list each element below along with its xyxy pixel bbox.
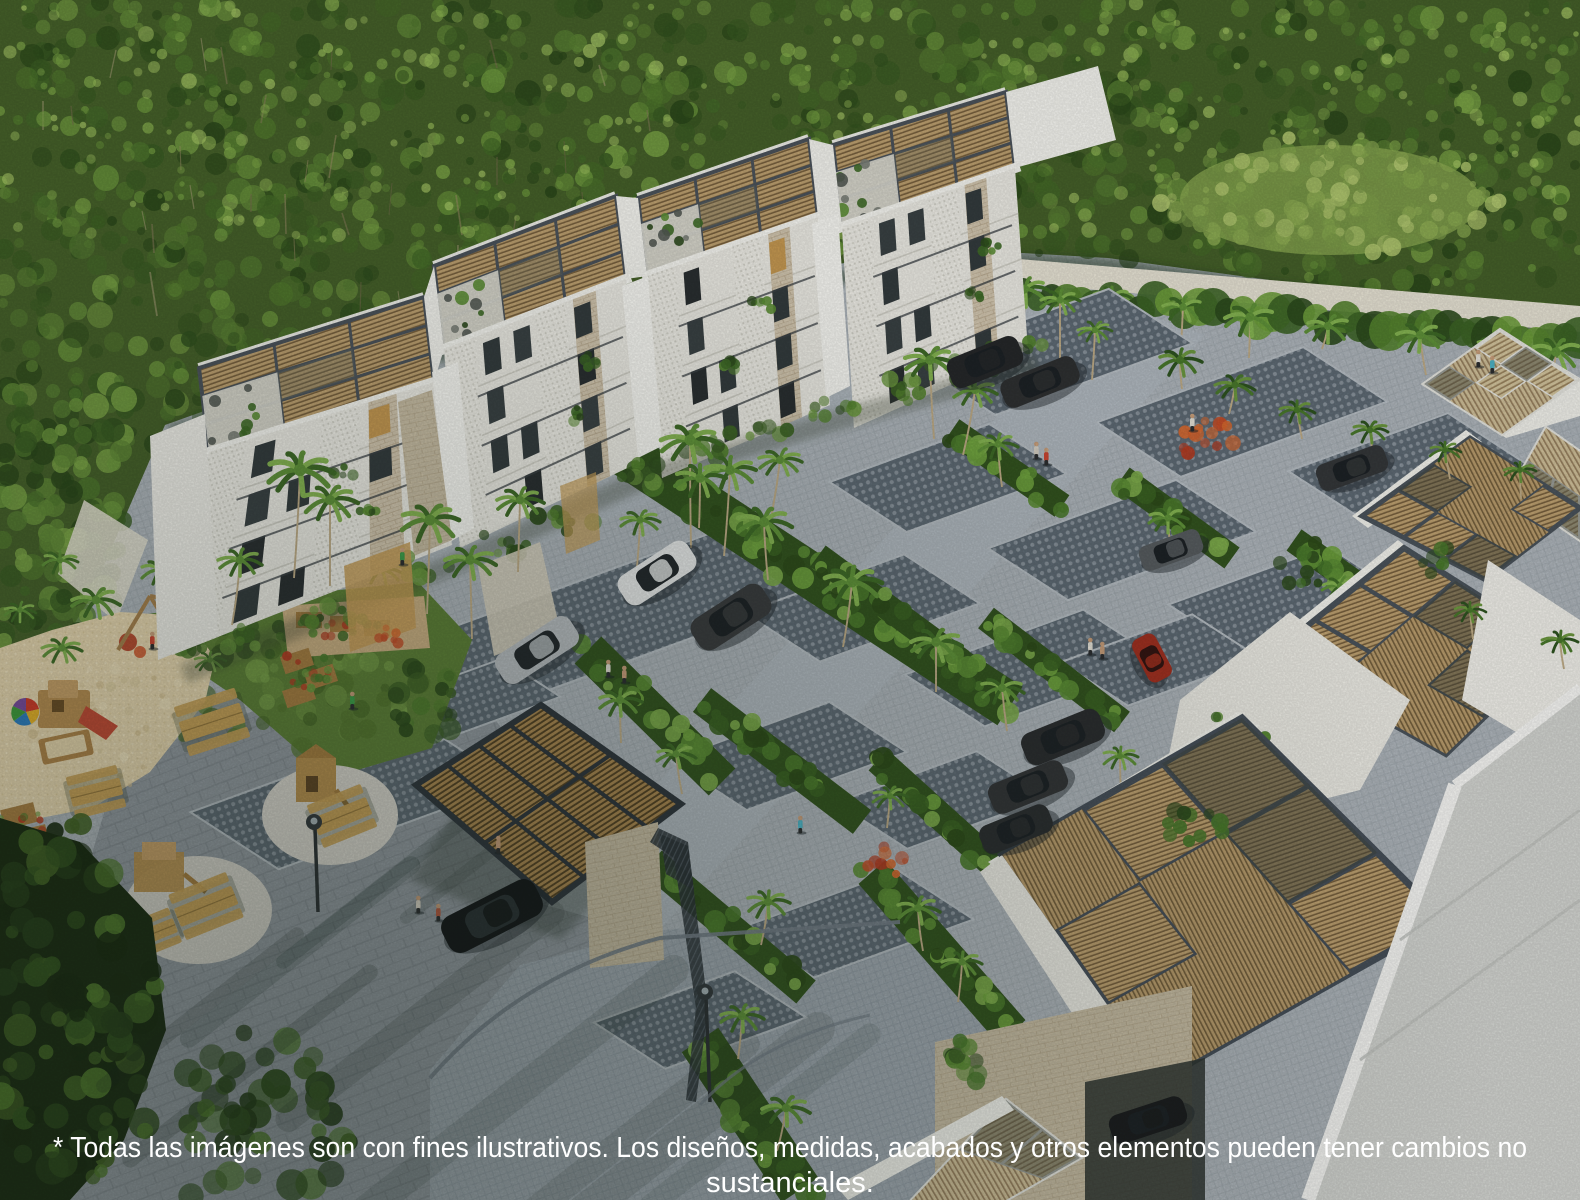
svg-text:sustanciales.: sustanciales.	[706, 1167, 874, 1199]
svg-text:* Todas las imágenes son con f: * Todas las imágenes son con fines ilust…	[53, 1132, 1527, 1164]
